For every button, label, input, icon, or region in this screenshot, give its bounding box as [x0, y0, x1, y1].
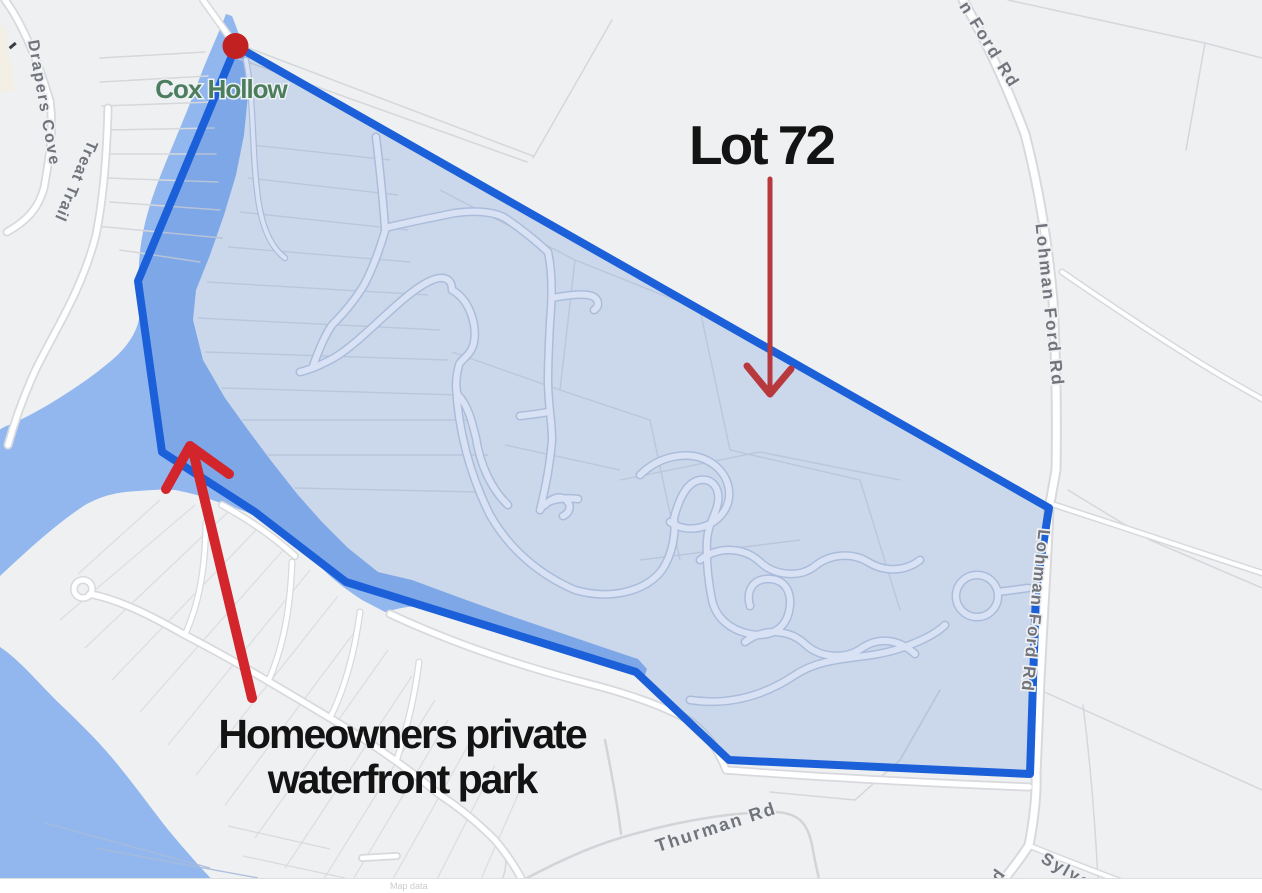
svg-text:Map data: Map data	[390, 881, 428, 891]
svg-text:Homeowners private: Homeowners private	[218, 711, 586, 757]
svg-text:Lot 72: Lot 72	[689, 114, 834, 176]
svg-text:waterfront park: waterfront park	[267, 756, 539, 802]
svg-text:Cox Hollow: Cox Hollow	[155, 74, 288, 104]
